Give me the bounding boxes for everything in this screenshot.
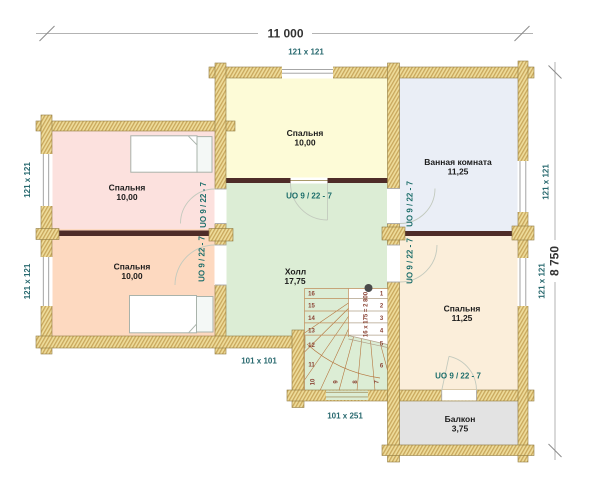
svg-text:Балкон: Балкон — [445, 414, 476, 424]
svg-text:Спальня: Спальня — [287, 128, 324, 138]
svg-text:3,75: 3,75 — [452, 424, 469, 434]
svg-text:17,75: 17,75 — [284, 276, 306, 286]
svg-text:11,25: 11,25 — [452, 313, 473, 323]
svg-text:10,00: 10,00 — [121, 271, 143, 281]
svg-text:UO 9 / 22 - 7: UO 9 / 22 - 7 — [199, 182, 208, 228]
svg-text:UO 9 / 22 - 7: UO 9 / 22 - 7 — [286, 192, 332, 201]
svg-text:16: 16 — [308, 292, 315, 298]
svg-text:10: 10 — [311, 378, 317, 385]
svg-text:10,00: 10,00 — [294, 138, 316, 148]
svg-text:10,00: 10,00 — [116, 192, 138, 202]
svg-text:Спальня: Спальня — [109, 183, 146, 193]
svg-text:121 x 121: 121 x 121 — [23, 162, 32, 198]
svg-text:Спальня: Спальня — [444, 304, 481, 314]
svg-text:121 x 121: 121 x 121 — [538, 263, 547, 299]
svg-text:Холл: Холл — [285, 267, 306, 277]
svg-text:101 x 101: 101 x 101 — [241, 357, 277, 366]
svg-text:11: 11 — [308, 363, 315, 369]
svg-text:14: 14 — [308, 316, 315, 322]
svg-text:UO 9 / 22 - 7: UO 9 / 22 - 7 — [435, 372, 481, 381]
svg-text:121 x 121: 121 x 121 — [288, 48, 324, 57]
svg-text:121 x 121: 121 x 121 — [23, 263, 32, 299]
svg-text:8 750: 8 750 — [548, 246, 562, 276]
svg-text:101 x 251: 101 x 251 — [327, 412, 363, 421]
svg-text:UO 9 / 22 - 7: UO 9 / 22 - 7 — [406, 238, 415, 284]
svg-text:12: 12 — [308, 343, 315, 349]
svg-text:Спальня: Спальня — [114, 262, 151, 272]
svg-text:UO 9 / 22 - 7: UO 9 / 22 - 7 — [406, 181, 415, 227]
svg-text:15: 15 — [308, 304, 315, 310]
svg-text:Ванная комната: Ванная комната — [424, 157, 492, 167]
svg-text:13: 13 — [308, 329, 315, 335]
svg-text:UO 9 / 22 - 7: UO 9 / 22 - 7 — [198, 236, 207, 282]
svg-text:16 x 175 = 2 800: 16 x 175 = 2 800 — [364, 291, 370, 337]
svg-text:11 000: 11 000 — [267, 27, 303, 41]
svg-text:121 x 121: 121 x 121 — [542, 164, 551, 200]
svg-text:11,25: 11,25 — [448, 167, 469, 177]
